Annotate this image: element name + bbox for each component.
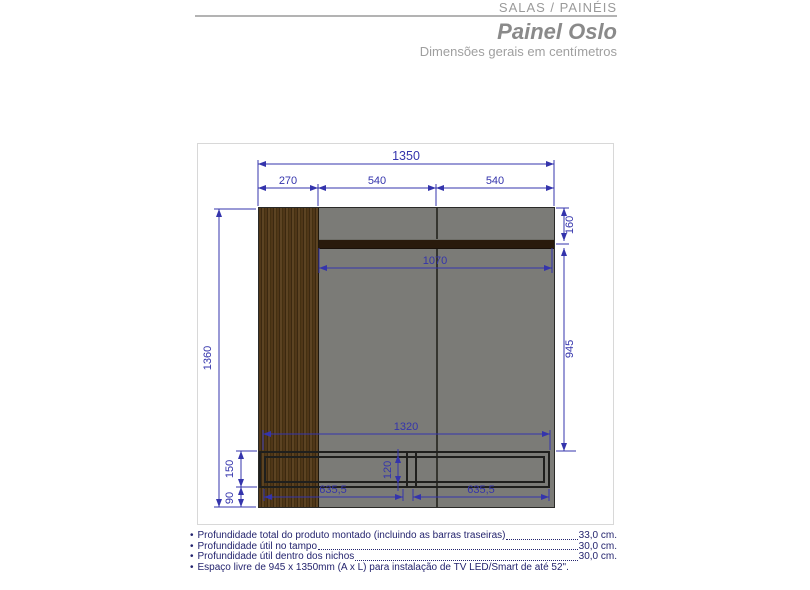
page: { "header": { "category": "SALAS / PAINÉ… bbox=[0, 0, 810, 590]
spec-value: 33,0 cm. bbox=[579, 531, 617, 542]
drawing-frame: 1350 270 540 540 1360 150 90 160 945 bbox=[197, 143, 614, 525]
dotted-leader bbox=[318, 549, 578, 550]
dim-rack-inner-height: 120 bbox=[382, 461, 394, 479]
dim-tv-space-height: 945 bbox=[564, 340, 576, 358]
dim-shelf-width: 1070 bbox=[423, 255, 447, 267]
breadcrumb: SALAS / PAINÉIS bbox=[195, 0, 617, 15]
dotted-leader bbox=[355, 560, 577, 561]
page-title: Painel Oslo bbox=[195, 20, 617, 44]
dim-total-height: 1360 bbox=[202, 346, 214, 370]
dim-top-band: 160 bbox=[564, 216, 576, 234]
spec-list: Profundidade total do produto montado (i… bbox=[190, 531, 617, 573]
dim-rack-width: 1320 bbox=[394, 421, 418, 433]
dotted-leader bbox=[506, 539, 577, 540]
dim-niche-left-width: 635,5 bbox=[319, 484, 347, 496]
spec-item-depth-total: Profundidade total do produto montado (i… bbox=[190, 531, 617, 542]
page-header: SALAS / PAINÉIS Painel Oslo Dimensões ge… bbox=[195, 0, 617, 59]
dim-section-right: 540 bbox=[486, 175, 504, 187]
spec-value: 30,0 cm. bbox=[579, 552, 617, 563]
dim-total-width: 1350 bbox=[392, 149, 420, 163]
spec-label: Profundidade útil dentro dos nichos bbox=[198, 552, 355, 563]
dim-rack-height: 150 bbox=[224, 460, 236, 478]
dimension-layer: 1350 270 540 540 1360 150 90 160 945 bbox=[198, 144, 613, 524]
dim-niche-right-width: 635,5 bbox=[467, 484, 495, 496]
page-subtitle: Dimensões gerais em centímetros bbox=[195, 44, 617, 59]
dim-bottom-gap: 90 bbox=[224, 492, 236, 504]
dim-section-left: 540 bbox=[368, 175, 386, 187]
spec-label: Espaço livre de 945 x 1350mm (A x L) par… bbox=[198, 563, 569, 574]
spec-item-tv-space: Espaço livre de 945 x 1350mm (A x L) par… bbox=[190, 563, 617, 574]
dim-wood-strip-width: 270 bbox=[279, 175, 297, 187]
header-divider bbox=[195, 15, 617, 17]
spec-item-depth-niche: Profundidade útil dentro dos nichos 30,0… bbox=[190, 552, 617, 563]
spec-label: Profundidade total do produto montado (i… bbox=[198, 531, 506, 542]
